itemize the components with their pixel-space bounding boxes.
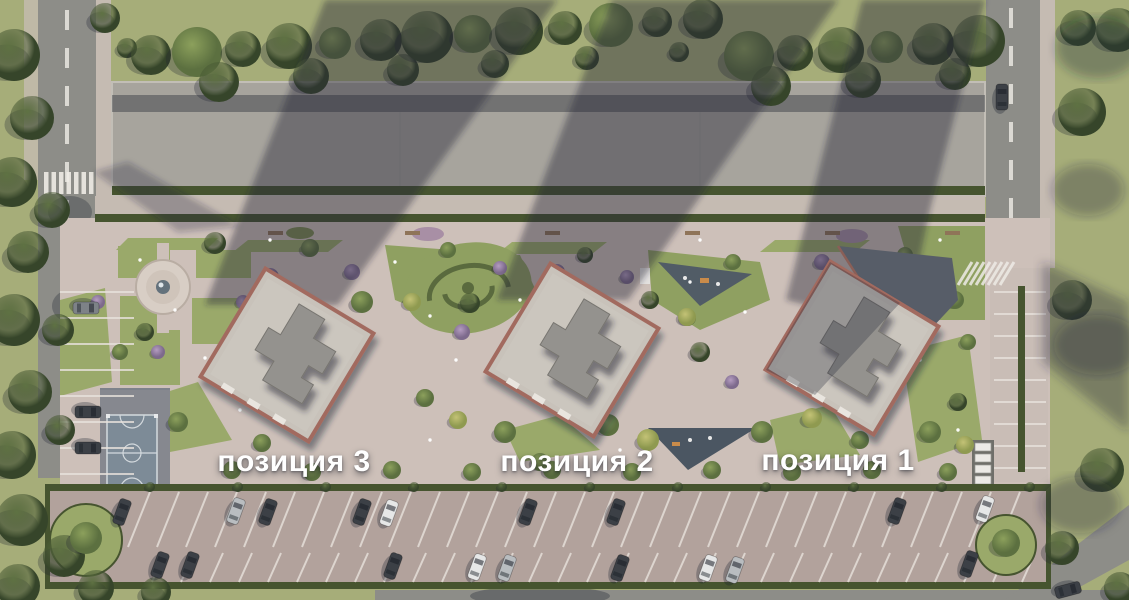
car-windshield bbox=[998, 89, 1007, 94]
zebra-stripe bbox=[89, 172, 94, 194]
lane-dash bbox=[65, 86, 69, 106]
lamp-dot bbox=[743, 310, 746, 313]
tree bbox=[42, 314, 74, 346]
site-plan-render: позиция 3 позиция 2 позиция 1 bbox=[0, 0, 1129, 600]
tree bbox=[937, 482, 947, 492]
zebra-stripe bbox=[82, 172, 87, 194]
lamp-dot bbox=[454, 358, 457, 361]
lamp-dot bbox=[688, 280, 691, 283]
tree bbox=[225, 31, 261, 67]
lamp-dot bbox=[956, 428, 959, 431]
car-rear-window bbox=[79, 444, 83, 453]
tree bbox=[703, 461, 721, 479]
car-body bbox=[75, 406, 101, 418]
bench bbox=[405, 231, 420, 235]
tree bbox=[690, 342, 710, 362]
tree bbox=[454, 324, 470, 340]
label-position-2[interactable]: позиция 2 bbox=[500, 445, 653, 479]
tree bbox=[131, 35, 171, 75]
tree bbox=[463, 463, 481, 481]
waste-containers bbox=[972, 440, 994, 488]
tree bbox=[761, 482, 771, 492]
tree bbox=[34, 192, 70, 228]
tree bbox=[960, 334, 976, 350]
tree bbox=[1025, 482, 1035, 492]
tree bbox=[70, 522, 102, 554]
tree bbox=[233, 482, 243, 492]
tree bbox=[949, 393, 967, 411]
tree bbox=[8, 370, 52, 414]
lane-dash bbox=[1009, 8, 1013, 28]
car-rear-window bbox=[77, 304, 81, 313]
zebra-stripe bbox=[52, 172, 57, 194]
zebra-stripe bbox=[67, 172, 72, 194]
tree bbox=[641, 291, 659, 309]
tree bbox=[460, 293, 480, 313]
zebra-stripe bbox=[44, 172, 49, 194]
tree bbox=[725, 375, 739, 389]
tree bbox=[440, 242, 456, 258]
car-windshield bbox=[91, 408, 96, 417]
car-windshield bbox=[91, 444, 96, 453]
tree bbox=[90, 3, 120, 33]
tree bbox=[351, 291, 373, 313]
lane-dash bbox=[1009, 84, 1013, 104]
tree bbox=[1045, 531, 1079, 565]
lamp-dot bbox=[393, 260, 396, 263]
basketball-court bbox=[100, 388, 170, 496]
lamp-dot bbox=[173, 308, 176, 311]
tree bbox=[802, 408, 822, 428]
tree bbox=[204, 232, 226, 254]
lamp-dot bbox=[518, 298, 521, 301]
car-rear-window bbox=[79, 408, 83, 417]
lamp-dot bbox=[698, 238, 701, 241]
tree bbox=[168, 412, 188, 432]
tree bbox=[416, 389, 434, 407]
label-position-3[interactable]: позиция 3 bbox=[217, 445, 370, 479]
lamp-dot bbox=[428, 314, 431, 317]
tree bbox=[1058, 88, 1106, 136]
tree bbox=[919, 421, 941, 443]
tree bbox=[725, 254, 741, 270]
zebra-stripe bbox=[74, 172, 79, 194]
zebra-stripe bbox=[59, 172, 64, 194]
tree bbox=[145, 482, 155, 492]
lane-dash bbox=[1009, 160, 1013, 180]
bench bbox=[685, 231, 700, 235]
tree bbox=[751, 421, 773, 443]
lane-dash bbox=[65, 124, 69, 144]
tree bbox=[548, 11, 582, 45]
car-windshield bbox=[89, 304, 94, 313]
tree bbox=[497, 482, 507, 492]
tree bbox=[494, 421, 516, 443]
lamp-dot bbox=[938, 238, 941, 241]
lamp-dot bbox=[268, 238, 271, 241]
tree bbox=[151, 345, 165, 359]
lamp-dot bbox=[203, 356, 206, 359]
lane-dash bbox=[1009, 46, 1013, 66]
tree bbox=[136, 323, 154, 341]
car-rear-window bbox=[998, 102, 1007, 106]
tree bbox=[956, 436, 974, 454]
lamp-dot bbox=[238, 408, 241, 411]
tree bbox=[449, 411, 467, 429]
tree bbox=[45, 415, 75, 445]
tree bbox=[383, 461, 401, 479]
site-plan-canvas bbox=[0, 0, 1129, 600]
tree bbox=[321, 482, 331, 492]
lane-dash bbox=[1009, 198, 1013, 218]
lane-dash bbox=[65, 10, 69, 30]
lamp-dot bbox=[428, 438, 431, 441]
label-position-1[interactable]: позиция 1 bbox=[761, 444, 914, 478]
car-body bbox=[996, 84, 1008, 110]
tree bbox=[678, 308, 696, 326]
tree bbox=[409, 482, 419, 492]
lane-dash bbox=[1009, 122, 1013, 142]
tree bbox=[403, 293, 421, 311]
tree bbox=[992, 529, 1020, 557]
tree bbox=[7, 231, 49, 273]
car-body bbox=[73, 302, 99, 314]
tree bbox=[673, 482, 683, 492]
tree bbox=[585, 482, 595, 492]
tree bbox=[112, 344, 128, 360]
tree bbox=[939, 463, 957, 481]
tree bbox=[849, 482, 859, 492]
fountain bbox=[156, 280, 170, 294]
lamp-dot bbox=[138, 258, 141, 261]
car-body bbox=[75, 442, 101, 454]
tree bbox=[493, 261, 507, 275]
lane-dash bbox=[65, 48, 69, 68]
tree bbox=[10, 96, 54, 140]
bench bbox=[945, 231, 960, 235]
tree bbox=[199, 62, 239, 102]
